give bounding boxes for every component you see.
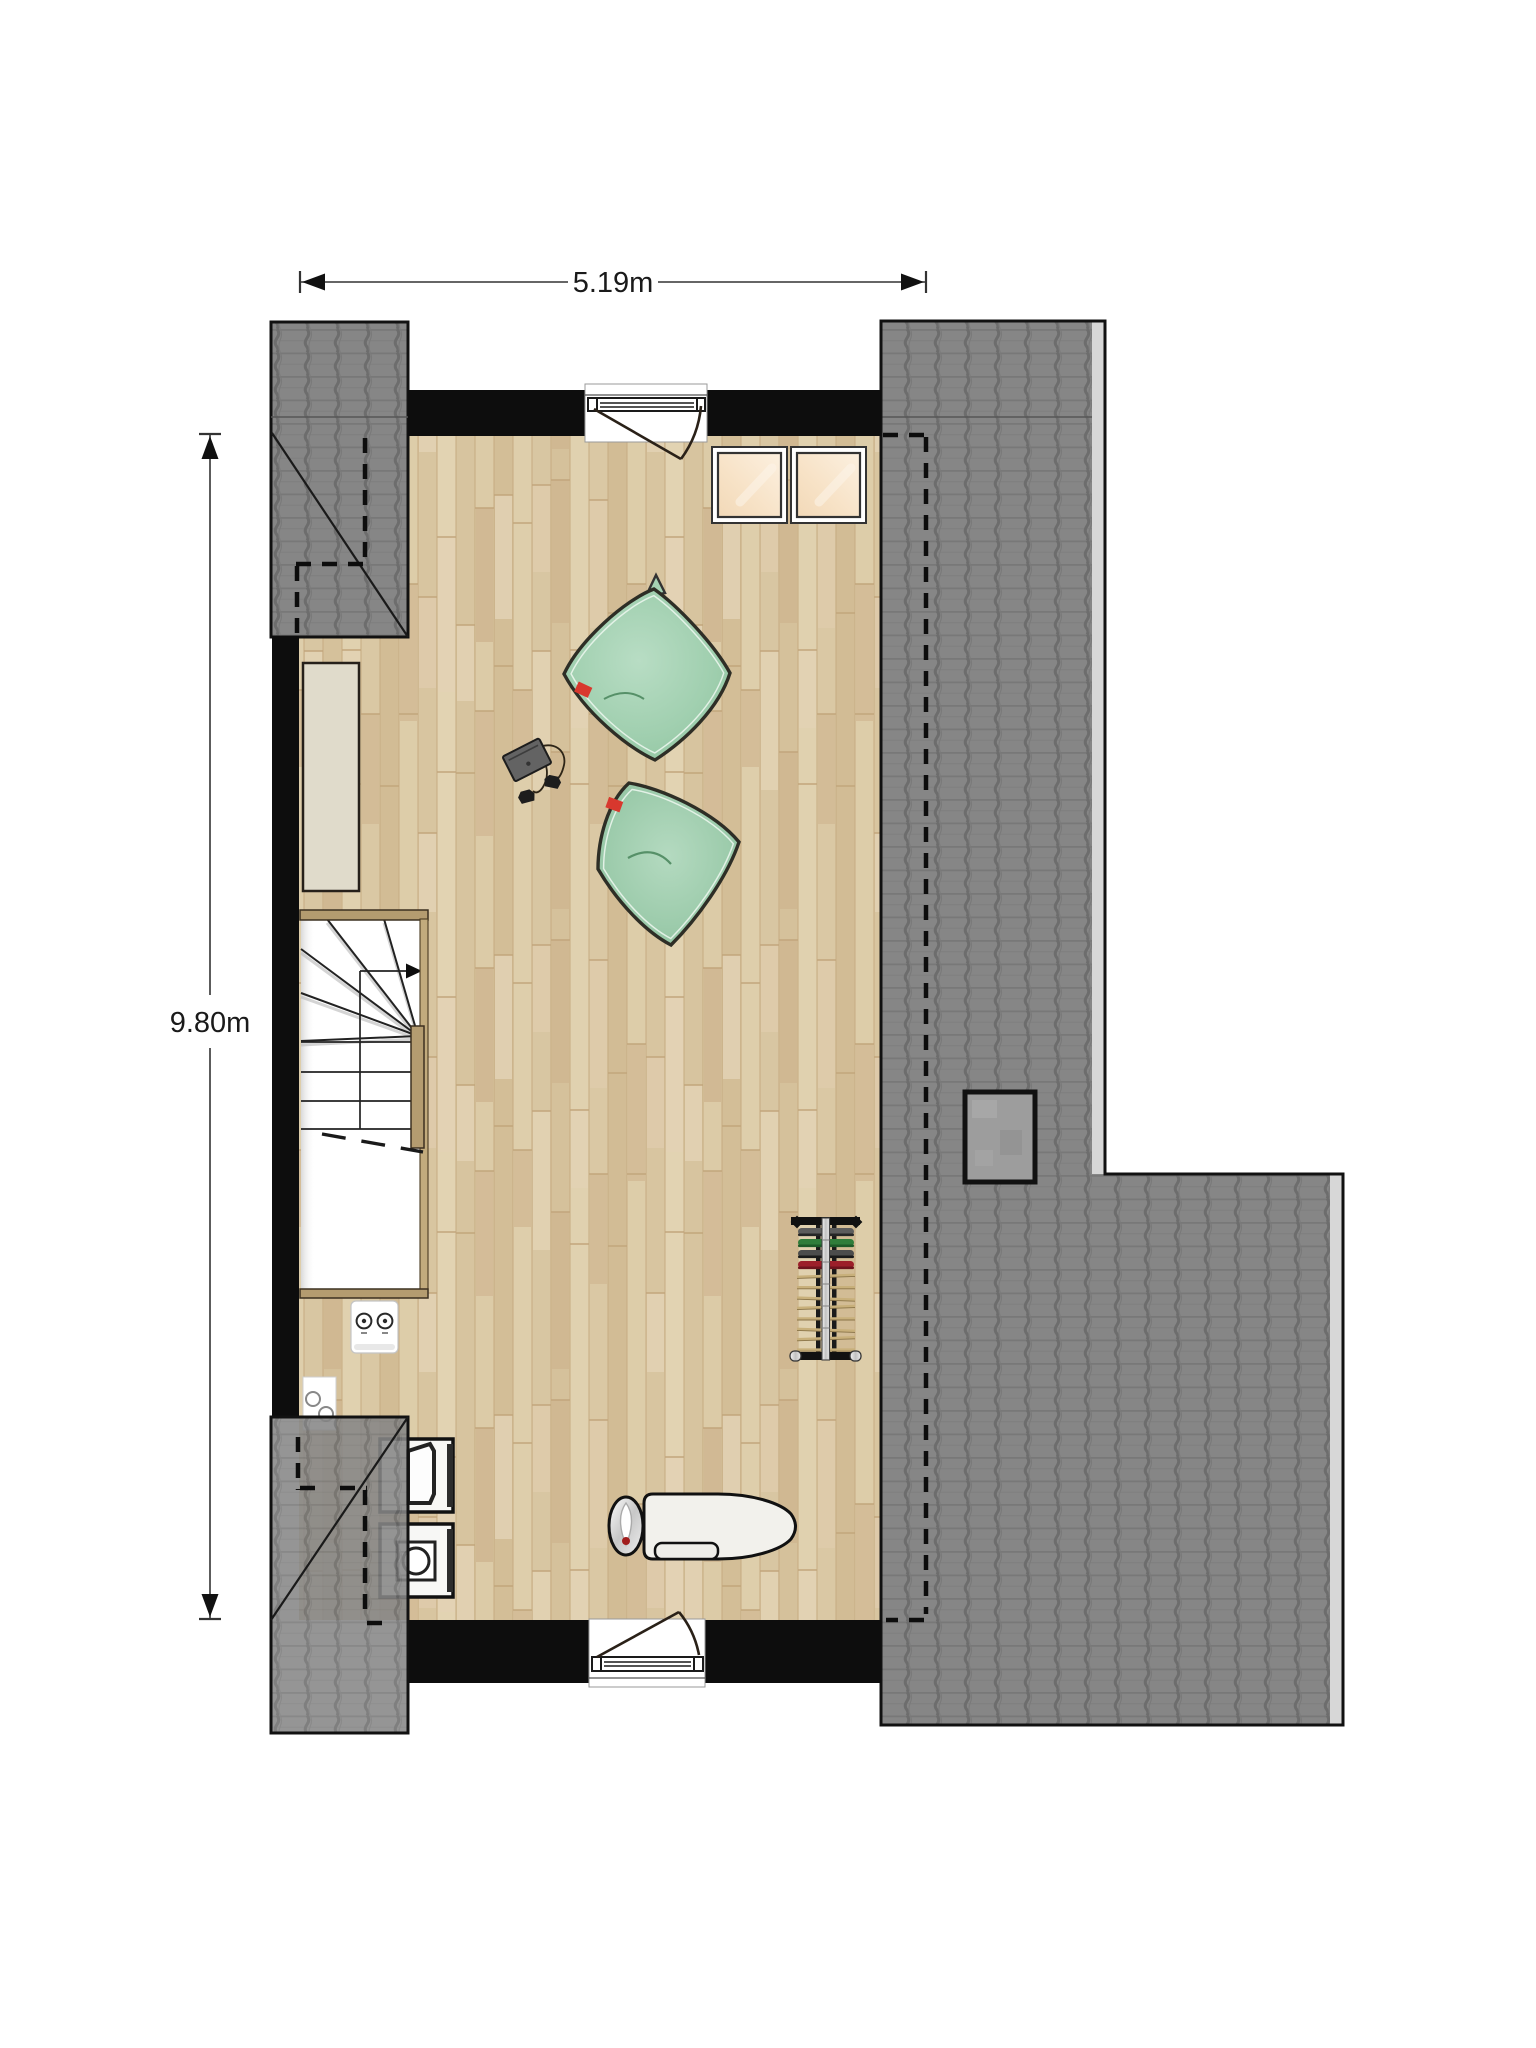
svg-text:9.80m: 9.80m xyxy=(170,1007,251,1039)
svg-text:5.19m: 5.19m xyxy=(573,267,654,299)
